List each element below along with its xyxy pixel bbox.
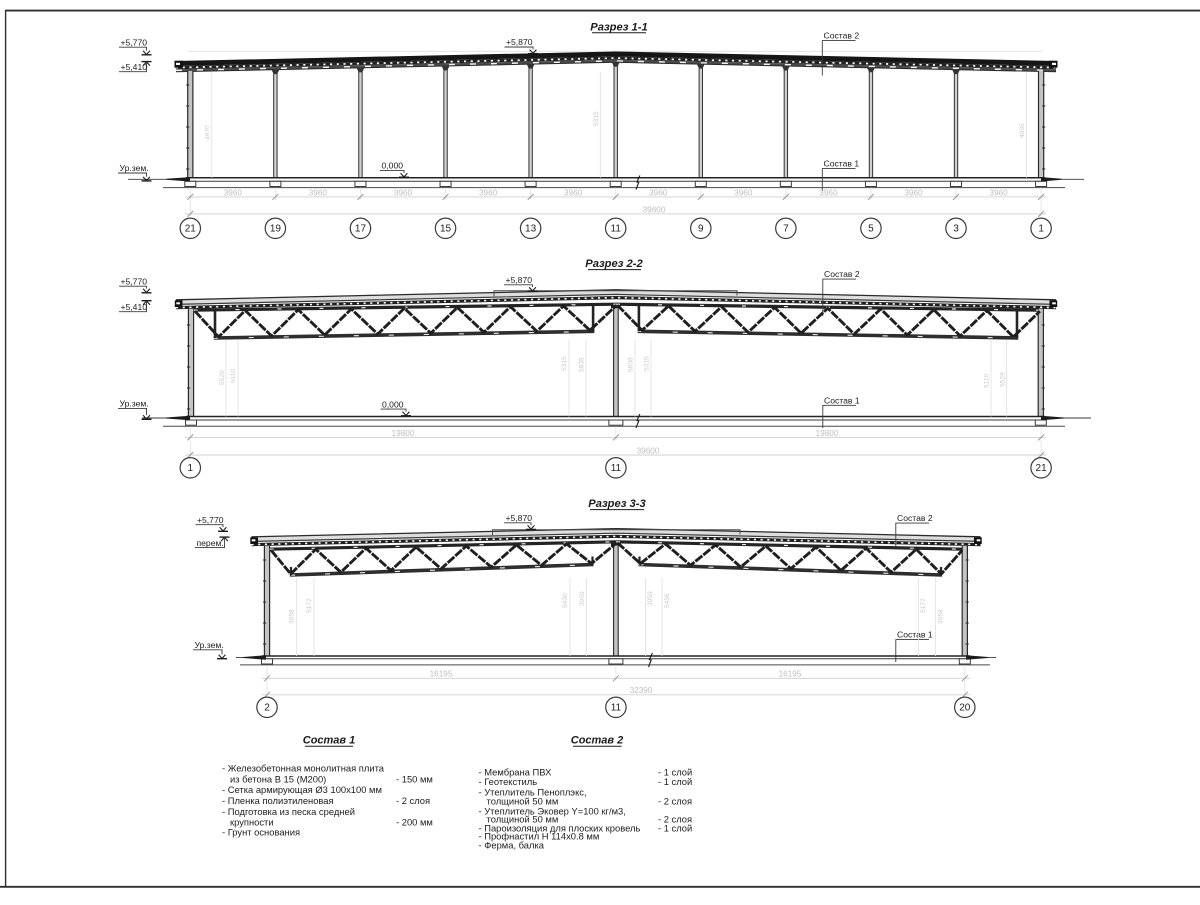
svg-text:5838: 5838 <box>579 357 586 372</box>
svg-text:19: 19 <box>270 224 282 235</box>
svg-text:17: 17 <box>355 224 367 235</box>
svg-text:3960: 3960 <box>394 189 413 198</box>
svg-text:- 1 слой: - 1 слой <box>658 823 692 834</box>
svg-text:+5,770: +5,770 <box>121 37 148 47</box>
svg-text:3960: 3960 <box>309 189 328 198</box>
svg-text:11: 11 <box>611 703 622 714</box>
svg-text:19800: 19800 <box>392 429 415 438</box>
svg-text:3960: 3960 <box>564 189 583 198</box>
svg-text:5529: 5529 <box>219 370 226 385</box>
svg-text:3960: 3960 <box>819 189 838 198</box>
svg-text:- 200 мм: - 200 мм <box>396 817 433 828</box>
svg-text:3960: 3960 <box>649 189 668 198</box>
svg-text:11: 11 <box>611 463 622 474</box>
svg-text:5: 5 <box>868 224 874 235</box>
svg-text:5110: 5110 <box>984 373 991 388</box>
svg-text:- 2 слоя: - 2 слоя <box>658 796 692 807</box>
svg-text:9: 9 <box>698 224 704 235</box>
svg-text:Ур.зем.: Ур.зем. <box>120 399 149 409</box>
svg-text:5456: 5456 <box>664 593 671 608</box>
svg-text:19800: 19800 <box>816 429 839 438</box>
svg-text:5430: 5430 <box>562 593 569 608</box>
svg-text:5315: 5315 <box>644 356 651 371</box>
svg-text:5838: 5838 <box>628 357 635 372</box>
svg-text:+5,410: +5,410 <box>121 302 148 312</box>
svg-text:16195: 16195 <box>779 669 802 678</box>
svg-text:0,000: 0,000 <box>382 161 404 171</box>
svg-text:3960: 3960 <box>224 189 243 198</box>
svg-text:- 2 слоя: - 2 слоя <box>396 795 430 806</box>
svg-text:1: 1 <box>188 463 194 474</box>
svg-text:Состав 1: Состав 1 <box>824 395 860 405</box>
svg-text:Состав 2: Состав 2 <box>897 513 933 523</box>
svg-text:- 1 слой: - 1 слой <box>658 776 692 787</box>
svg-text:3960: 3960 <box>479 189 498 198</box>
svg-text:2: 2 <box>264 703 270 714</box>
svg-text:Состав 2: Состав 2 <box>824 31 860 41</box>
svg-text:- Пленка полиэтиленовая: - Пленка полиэтиленовая <box>222 795 334 806</box>
svg-text:16195: 16195 <box>430 669 453 678</box>
svg-text:3960: 3960 <box>904 189 923 198</box>
svg-text:- Подготовка из песка средней: - Подготовка из песка средней <box>222 806 355 817</box>
svg-text:- Железобетонная монолитная п: - Железобетонная монолитная плита <box>222 762 385 773</box>
svg-text:11: 11 <box>611 224 622 235</box>
svg-text:5315: 5315 <box>593 111 600 126</box>
svg-text:39600: 39600 <box>637 446 660 455</box>
svg-text:5172: 5172 <box>306 598 313 613</box>
svg-text:4935: 4935 <box>1019 123 1026 138</box>
svg-text:Разрез 2-2: Разрез 2-2 <box>585 258 643 270</box>
svg-text:перем.: перем. <box>197 538 224 548</box>
svg-text:20: 20 <box>959 703 971 714</box>
svg-text:3959: 3959 <box>647 591 654 606</box>
svg-text:5172: 5172 <box>920 598 927 613</box>
svg-text:3960: 3960 <box>989 189 1008 198</box>
svg-text:5529: 5529 <box>1000 372 1007 387</box>
svg-text:+5,870: +5,870 <box>506 275 533 285</box>
svg-text:Ур.зем.: Ур.зем. <box>195 640 224 650</box>
svg-text:- Сетка армирующая Ø3 100х100: - Сетка армирующая Ø3 100х100 мм <box>222 784 382 795</box>
svg-text:Состав 2: Состав 2 <box>571 735 624 747</box>
svg-text:+5,770: +5,770 <box>197 515 224 525</box>
svg-text:Состав 1: Состав 1 <box>303 735 356 747</box>
svg-text:6110: 6110 <box>230 368 237 383</box>
svg-text:21: 21 <box>1036 463 1048 474</box>
svg-text:39600: 39600 <box>643 205 666 214</box>
svg-text:+5,410: +5,410 <box>121 62 148 72</box>
svg-text:3658: 3658 <box>289 609 296 624</box>
svg-text:из бетона В 15 (М200): из бетона В 15 (М200) <box>230 773 326 784</box>
svg-text:4970: 4970 <box>205 125 212 140</box>
svg-text:3: 3 <box>953 224 959 235</box>
svg-text:Разрез 3-3: Разрез 3-3 <box>588 498 646 510</box>
svg-text:Разрез 1-1: Разрез 1-1 <box>590 22 647 34</box>
svg-text:13: 13 <box>525 224 537 235</box>
svg-text:1: 1 <box>1038 224 1044 235</box>
svg-text:+5,770: +5,770 <box>121 276 148 286</box>
svg-text:+5,870: +5,870 <box>506 513 533 523</box>
svg-text:- 150 мм: - 150 мм <box>396 773 433 784</box>
svg-text:5315: 5315 <box>561 356 568 371</box>
svg-text:32390: 32390 <box>630 686 653 695</box>
svg-text:15: 15 <box>440 224 452 235</box>
svg-text:0,000: 0,000 <box>382 399 404 409</box>
svg-text:3959: 3959 <box>579 591 586 606</box>
svg-text:+5,870: +5,870 <box>506 37 533 47</box>
svg-text:3960: 3960 <box>734 189 753 198</box>
svg-text:3658: 3658 <box>938 609 945 624</box>
svg-text:- Геотекстиль: - Геотекстиль <box>479 776 538 787</box>
svg-text:Ур.зем.: Ур.зем. <box>120 163 149 173</box>
svg-text:Состав 2: Состав 2 <box>824 269 860 279</box>
svg-text:21: 21 <box>185 224 197 235</box>
svg-text:Состав 1: Состав 1 <box>824 159 860 169</box>
svg-text:- Ферма, балка: - Ферма, балка <box>479 839 545 850</box>
svg-text:7: 7 <box>783 224 789 235</box>
svg-text:Состав 1: Состав 1 <box>897 630 933 640</box>
svg-text:- Грунт основания: - Грунт основания <box>222 827 300 838</box>
